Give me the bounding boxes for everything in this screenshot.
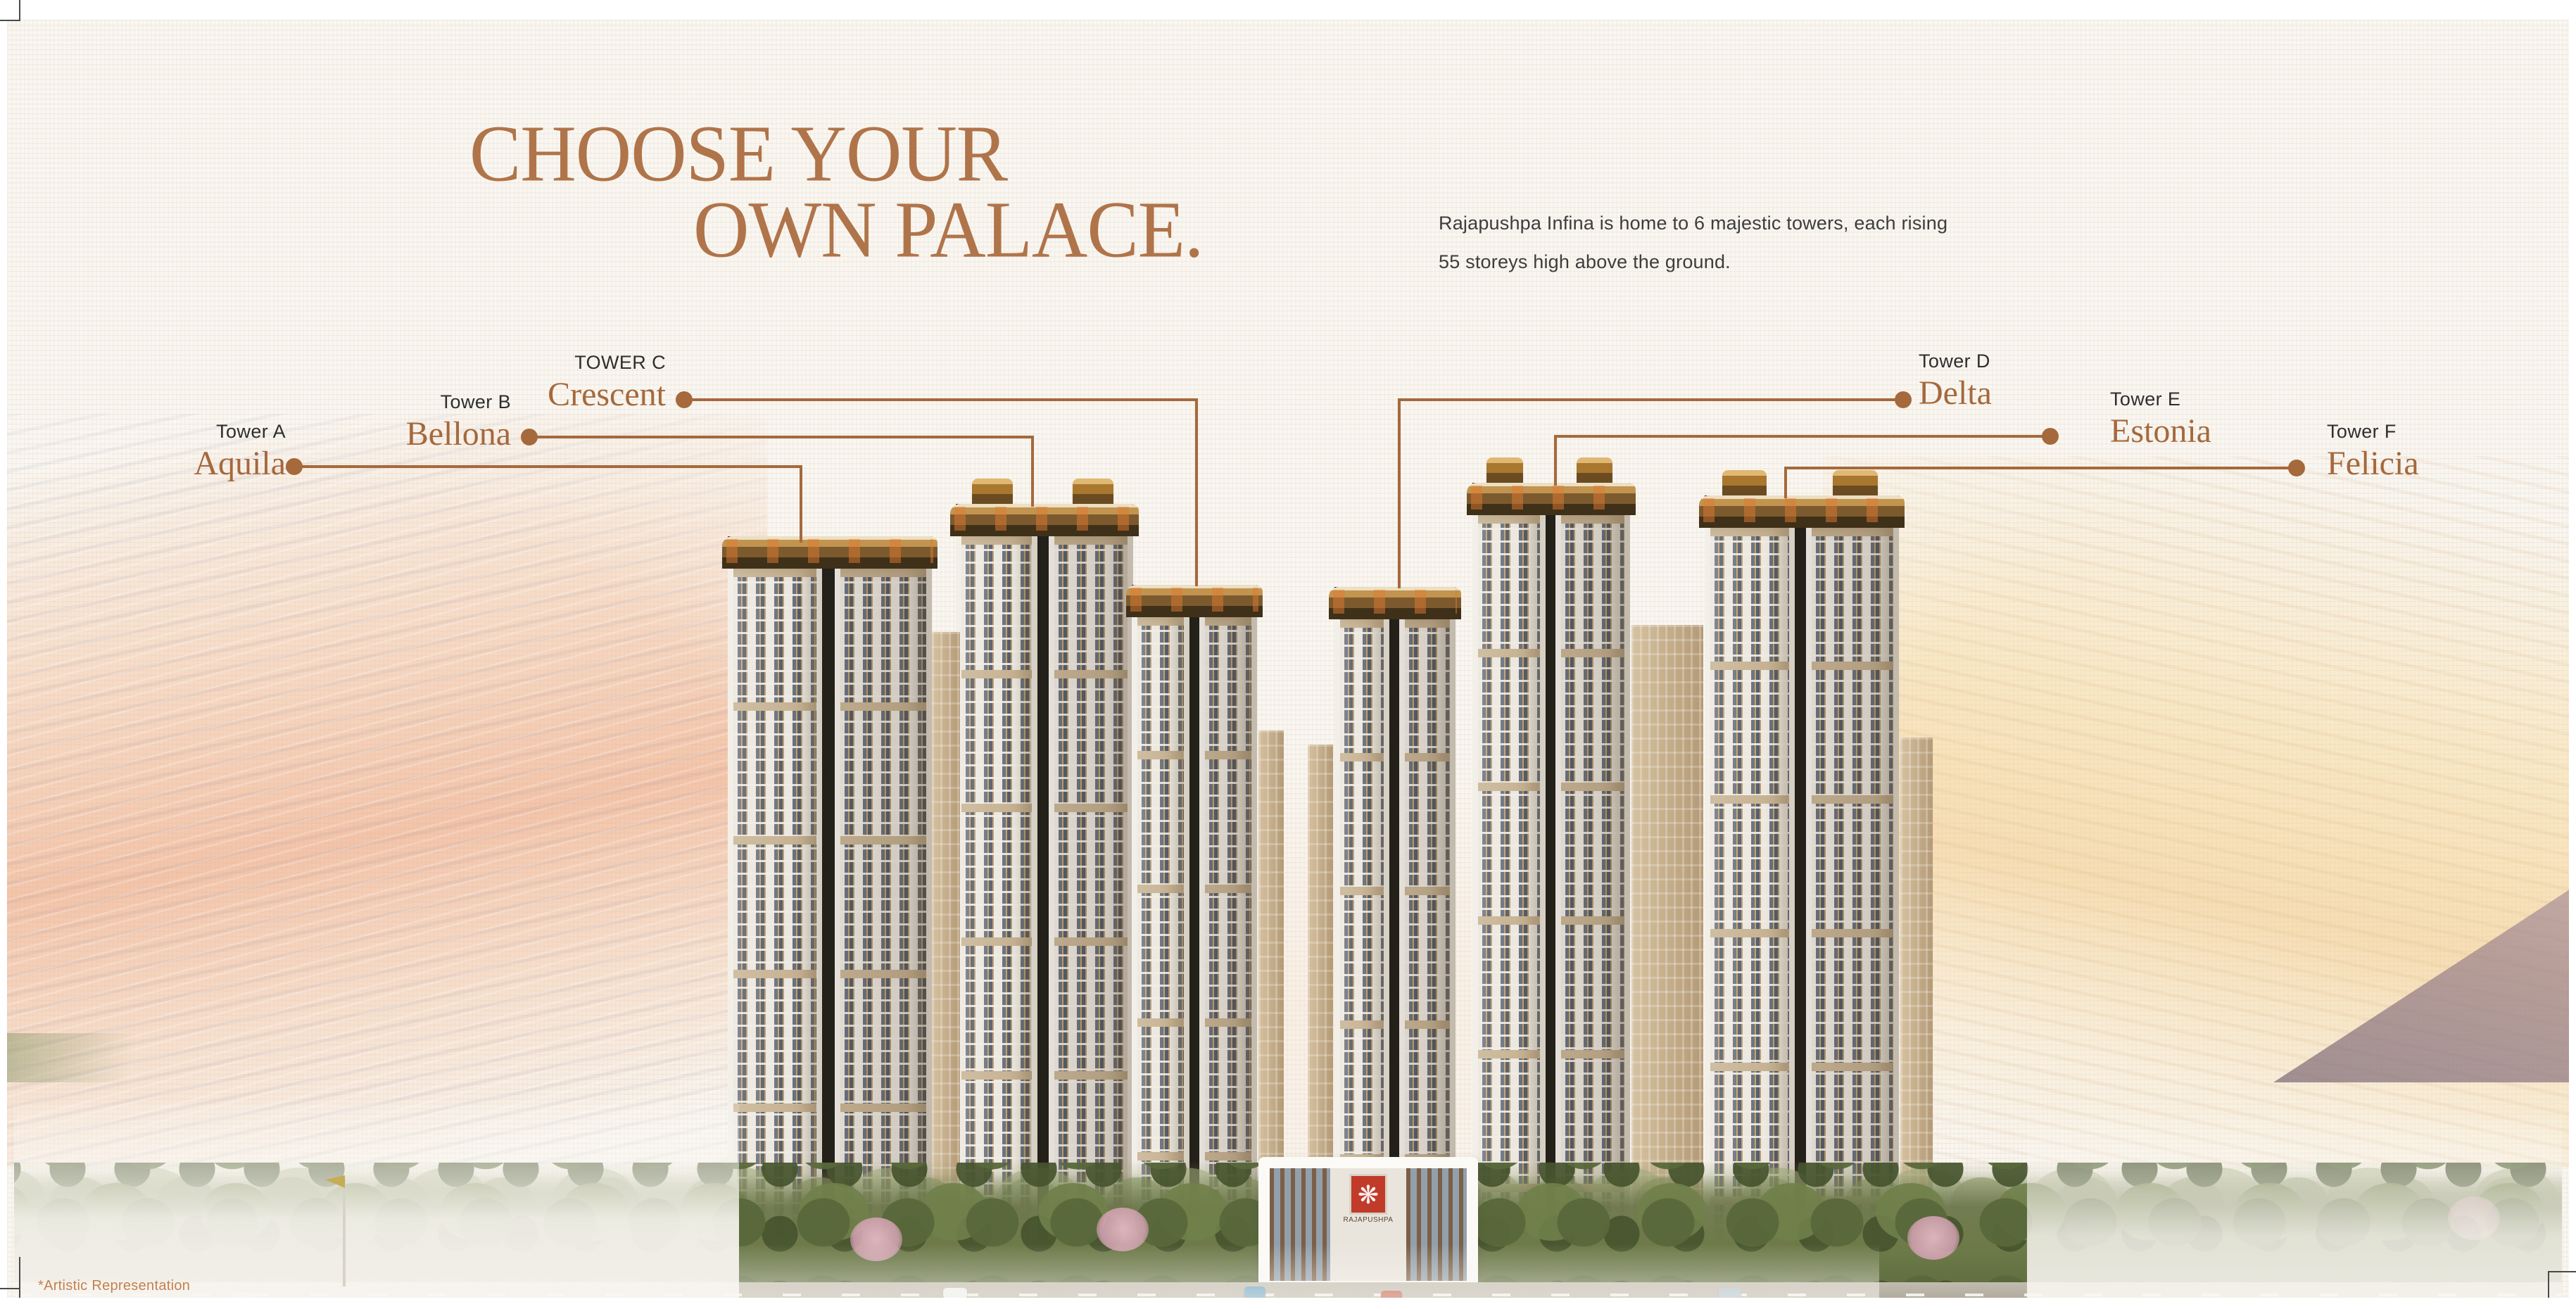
tower-f-label: Tower F [2327,421,2538,443]
leader-line-tower-e [1555,435,2050,438]
flowering-tree [1097,1208,1149,1251]
tower-d-crown [1329,587,1461,619]
leader-line-tower-b [1031,436,1034,507]
callout-tower-b: Tower B Bellona [331,391,511,453]
callout-tower-c: TOWER C Crescent [486,352,666,414]
tower-d-label: Tower D [1919,350,2130,372]
leader-line-tower-e [1554,435,1557,486]
brochure-page: CHOOSE YOUROWN PALACE. Rajapushpa Infina… [0,0,2576,1309]
clubhouse-glass-panel [1406,1168,1467,1281]
tower-b-crown [950,504,1139,536]
leader-dot-tower-c [676,391,693,408]
tower-c-label: TOWER C [486,352,666,374]
leader-dot-tower-a [286,458,303,475]
clubhouse-glass-panel [1270,1168,1330,1281]
description-line1: Rajapushpa Infina is home to 6 majestic … [1439,204,1988,243]
road [14,1282,2562,1298]
horizon-green-hint [7,1033,162,1082]
crop-mark [19,0,20,21]
leader-dot-tower-b [521,429,538,445]
flowering-tree [850,1218,902,1261]
tower-c-name: Crescent [486,375,666,414]
tower-e-crown [1467,483,1636,515]
flowering-tree [2448,1196,2500,1240]
page-margin-left [0,0,7,1309]
car [232,1292,253,1298]
leader-dot-tower-e [2042,428,2059,445]
crop-mark [19,1257,20,1298]
car [1719,1288,1741,1298]
page-title: CHOOSE YOUROWN PALACE. [469,115,1203,267]
tower-f-name: Felicia [2327,444,2538,483]
tower-b-label: Tower B [331,391,511,413]
artistic-representation-footnote: *Artistic Representation [38,1278,190,1294]
tower-f-roof-box [1722,470,1767,497]
callout-tower-f: Tower F Felicia [2327,421,2538,483]
page-margin-bottom [0,1298,2576,1309]
leader-line-tower-c [684,398,1198,401]
leader-line-tower-a [294,465,802,468]
tower-a-label: Tower A [106,421,286,443]
page-margin-top [0,0,2576,20]
leader-line-tower-f [1784,467,1787,498]
crop-mark [0,1288,20,1289]
tower-d-name: Delta [1919,374,2130,412]
leader-line-tower-d [1399,398,1903,401]
car [1244,1286,1265,1298]
crop-mark [0,20,20,21]
tower-a-name: Aquila [106,444,286,483]
tower-e-roof-box [1486,457,1523,484]
tower-c-crown [1126,585,1263,617]
clubhouse-center: RAJAPUSHPA [1330,1168,1406,1281]
tower-e-label: Tower E [2110,388,2321,410]
callout-tower-d: Tower D Delta [1919,350,2130,412]
description-text: Rajapushpa Infina is home to 6 majestic … [1439,204,1988,282]
crop-mark [2548,1271,2549,1298]
tower-b-roof-box [972,479,1013,505]
rajapushpa-logo-icon [1349,1174,1387,1215]
flag-pole [343,1180,346,1286]
leader-dot-tower-d [1895,391,1912,408]
flowering-tree [1907,1216,1959,1260]
leader-line-tower-c [1195,398,1198,586]
tower-f-crown [1699,495,1905,528]
tower-b-roof-box [1073,479,1113,505]
tower-e-roof-box [1577,457,1613,484]
tower-a-crown [722,536,937,569]
leader-line-tower-f [1786,467,2297,469]
leader-line-tower-a [800,465,802,543]
paper-canvas: CHOOSE YOUROWN PALACE. Rajapushpa Infina… [7,20,2569,1298]
car [943,1288,967,1298]
leader-dot-tower-f [2288,460,2305,476]
description-line2: 55 storeys high above the ground. [1439,243,1988,282]
page-title-line2: OWN PALACE. [693,191,1203,267]
callout-tower-e: Tower E Estonia [2110,388,2321,450]
crop-mark [2549,1271,2576,1272]
page-margin-right [2569,0,2576,1309]
rajapushpa-logo-text: RAJAPUSHPA [1330,1216,1406,1224]
callout-tower-a: Tower A Aquila [106,421,286,483]
car [1381,1291,1402,1298]
leader-line-tower-b [529,436,1034,438]
clubhouse-entrance: RAJAPUSHPA [1258,1157,1478,1288]
tower-f-roof-box [1833,470,1877,497]
leader-line-tower-d [1398,398,1401,588]
tower-e-name: Estonia [2110,412,2321,450]
tower-b-name: Bellona [331,415,511,453]
